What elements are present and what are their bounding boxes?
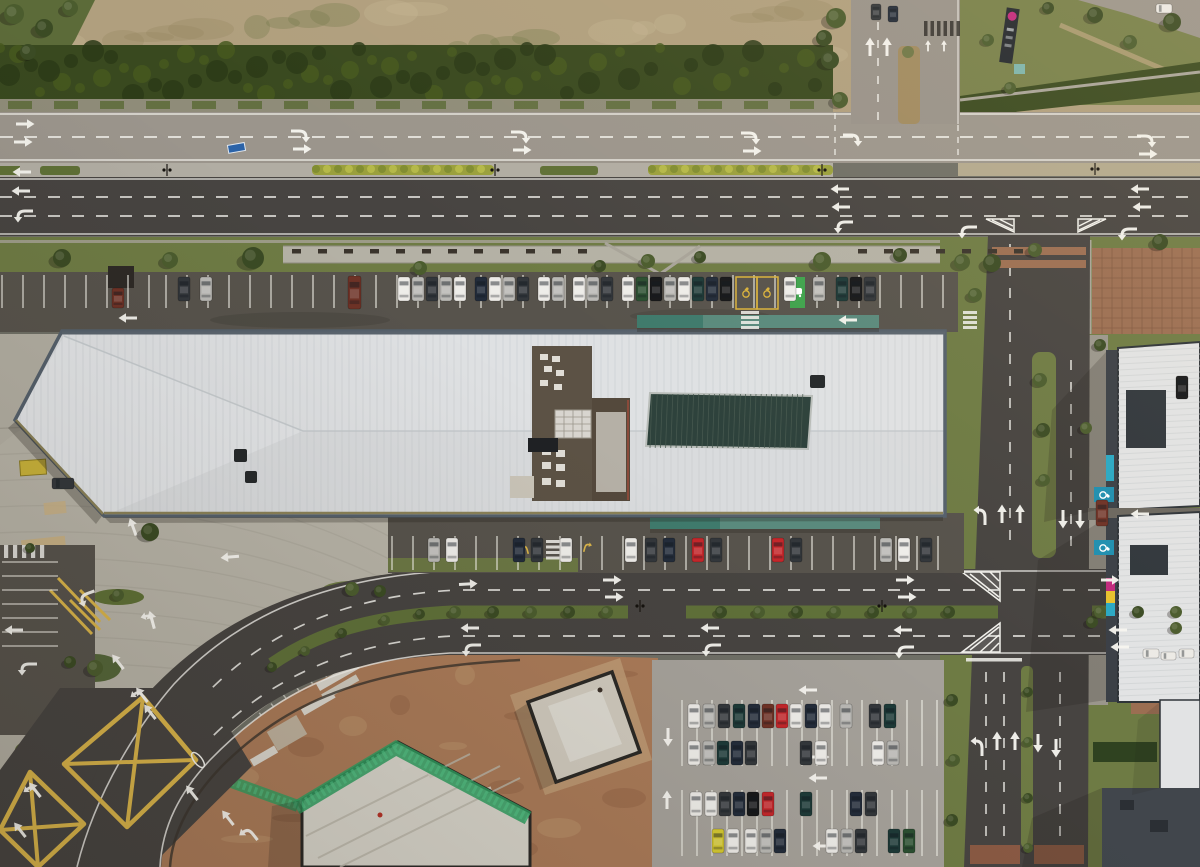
aerial-photo-stage xyxy=(0,0,1200,867)
aerial-photograph xyxy=(0,0,1200,867)
dusk-shadow-overlay xyxy=(0,0,1200,867)
